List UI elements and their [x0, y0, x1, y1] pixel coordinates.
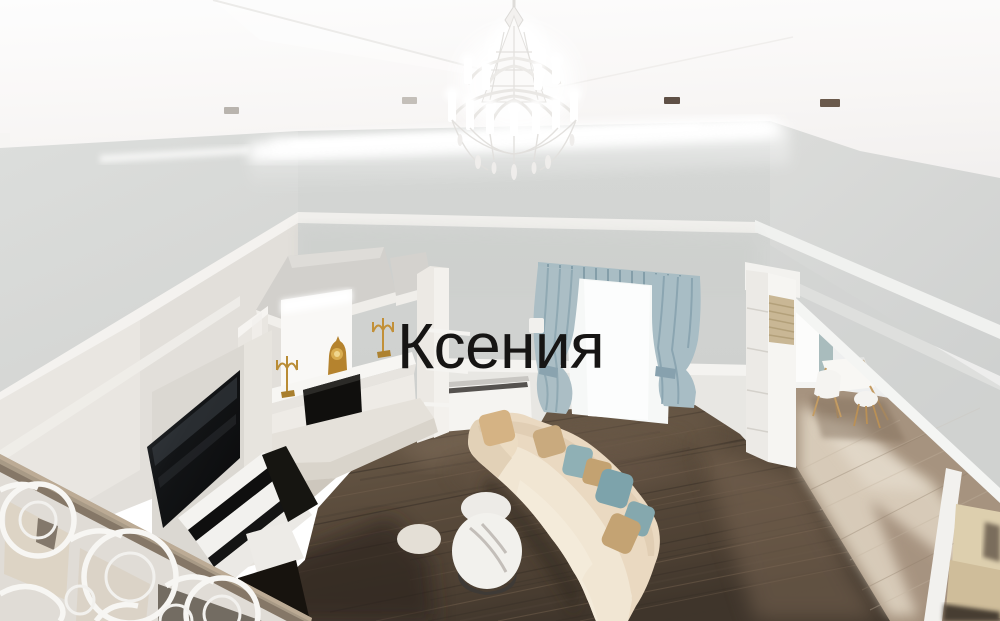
svg-text:Ксения: Ксения [397, 310, 604, 382]
